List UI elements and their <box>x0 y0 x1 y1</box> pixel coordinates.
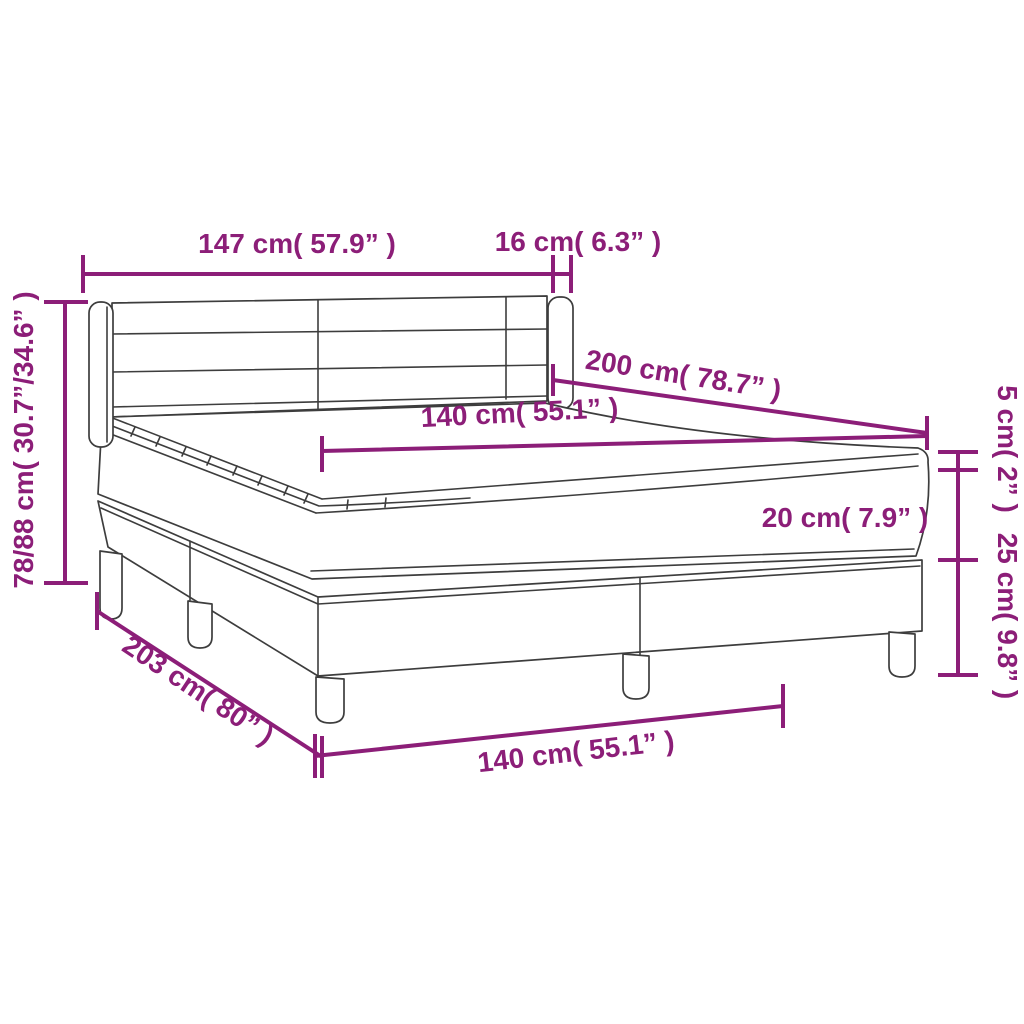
leg-back-left <box>100 551 122 619</box>
leg-front-right <box>889 632 915 677</box>
dim-topper-height-label: 5 cm( 2” ) <box>992 385 1023 513</box>
headboard-left-wing <box>89 302 113 447</box>
dim-headboard-width-line <box>83 255 571 293</box>
headboard-left-wing-panel <box>89 302 113 447</box>
dim-headboard-width-label: 147 cm( 57.9” ) <box>198 228 396 259</box>
dim-headboard-depth-label: 16 cm( 6.3” ) <box>495 226 662 257</box>
dim-base-width-label: 140 cm( 55.1” ) <box>476 725 676 778</box>
product-dimension-diagram: 147 cm( 57.9” ) 16 cm( 6.3” ) 78/88 cm( … <box>0 0 1024 1024</box>
dim-overall-height: 78/88 cm( 30.7”/34.6” ) <box>8 291 88 588</box>
dim-overall-height-label: 78/88 cm( 30.7”/34.6” ) <box>8 291 39 588</box>
leg-front-left <box>316 677 344 723</box>
dim-mattress-height-label: 20 cm( 7.9” ) <box>762 502 929 533</box>
leg-front-middle <box>623 654 649 699</box>
diagram-canvas: 147 cm( 57.9” ) 16 cm( 6.3” ) 78/88 cm( … <box>0 0 1024 1024</box>
dim-overall-height-line <box>44 302 88 583</box>
dim-base-width: 140 cm( 55.1” ) <box>315 684 783 778</box>
leg-mid-left <box>188 601 212 648</box>
dim-headboard-width: 147 cm( 57.9” ) 16 cm( 6.3” ) <box>83 226 661 293</box>
dim-base-height-label: 25 cm( 9.8” ) <box>992 533 1023 700</box>
dim-height-stack-line <box>938 452 978 675</box>
mattress-and-topper <box>98 403 929 579</box>
